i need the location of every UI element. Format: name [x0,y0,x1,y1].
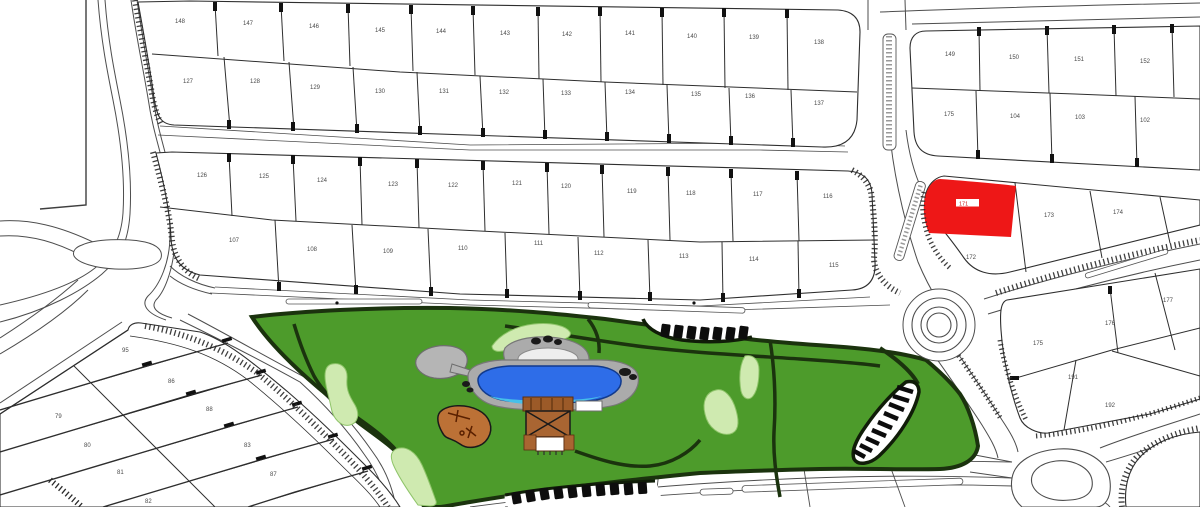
svg-text:127: 127 [183,79,194,85]
svg-text:132: 132 [499,90,510,96]
svg-text:79: 79 [55,414,62,420]
svg-text:110: 110 [458,246,468,252]
svg-text:136: 136 [745,94,756,100]
svg-text:111: 111 [534,241,544,247]
svg-text:83: 83 [244,443,251,449]
svg-text:177: 177 [1163,298,1174,304]
svg-text:124: 124 [317,178,328,184]
svg-text:88: 88 [206,407,213,413]
svg-text:128: 128 [250,79,261,85]
svg-text:144: 144 [436,29,447,35]
svg-text:119: 119 [627,189,637,195]
svg-text:137: 137 [814,101,825,107]
svg-text:87: 87 [270,472,277,478]
svg-text:142: 142 [562,32,573,38]
svg-text:82: 82 [145,499,152,505]
svg-text:126: 126 [197,173,208,179]
svg-text:150: 150 [1009,55,1020,61]
svg-text:135: 135 [691,92,702,98]
svg-text:140: 140 [687,34,698,40]
svg-text:118: 118 [686,191,696,197]
svg-text:149: 149 [945,52,956,58]
svg-text:120: 120 [561,184,572,190]
svg-text:176: 176 [1105,321,1116,327]
svg-text:114: 114 [749,257,759,263]
svg-text:107: 107 [229,238,240,244]
svg-text:151: 151 [1074,57,1085,63]
svg-text:113: 113 [679,254,689,260]
svg-text:152: 152 [1140,59,1151,65]
svg-text:130: 130 [375,89,386,95]
svg-text:133: 133 [561,91,572,97]
svg-text:175: 175 [1033,341,1044,347]
svg-text:139: 139 [749,35,760,41]
svg-text:103: 103 [1075,115,1086,121]
svg-text:171: 171 [959,202,968,208]
svg-text:102: 102 [1140,118,1151,124]
svg-text:123: 123 [388,182,399,188]
svg-text:175: 175 [944,112,955,118]
svg-text:112: 112 [594,251,604,257]
svg-text:143: 143 [500,31,511,37]
svg-text:147: 147 [243,21,254,27]
svg-text:108: 108 [307,247,318,253]
svg-text:172: 172 [966,255,977,261]
svg-text:117: 117 [753,192,763,198]
svg-text:138: 138 [814,40,825,46]
svg-text:125: 125 [259,174,270,180]
svg-text:95: 95 [122,348,129,354]
svg-text:146: 146 [309,24,320,30]
svg-text:80: 80 [84,443,91,449]
svg-text:148: 148 [175,19,186,25]
svg-text:86: 86 [168,379,175,385]
svg-text:81: 81 [117,470,124,476]
svg-text:121: 121 [512,181,523,187]
svg-text:145: 145 [375,28,386,34]
svg-text:122: 122 [448,183,459,189]
svg-text:192: 192 [1105,403,1116,409]
svg-text:134: 134 [625,90,636,96]
svg-text:191: 191 [1068,375,1079,381]
svg-text:174: 174 [1113,210,1124,216]
svg-text:141: 141 [625,31,636,37]
svg-text:104: 104 [1010,114,1021,120]
svg-text:115: 115 [829,263,839,269]
svg-text:131: 131 [439,89,450,95]
svg-text:116: 116 [823,194,833,200]
svg-text:109: 109 [383,249,394,255]
svg-text:173: 173 [1044,213,1055,219]
svg-text:129: 129 [310,85,321,91]
